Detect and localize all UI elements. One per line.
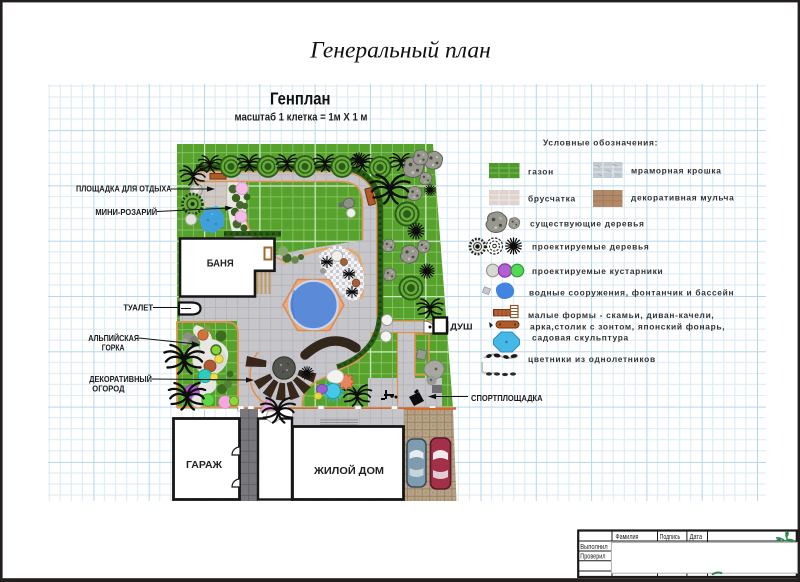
svg-text:БАНЯ: БАНЯ xyxy=(207,258,234,269)
svg-text:Условные обозначения:: Условные обозначения: xyxy=(543,138,658,148)
svg-text:проектируемые кустарники: проектируемые кустарники xyxy=(532,266,663,276)
svg-text:существующие деревья: существующие деревья xyxy=(530,219,645,229)
svg-text:АЛЬПИЙСКАЯ: АЛЬПИЙСКАЯ xyxy=(88,334,139,343)
svg-text:брусчатка: брусчатка xyxy=(528,194,576,204)
svg-text:ГОРКА: ГОРКА xyxy=(102,344,125,353)
svg-text:Фамилия: Фамилия xyxy=(616,534,639,541)
svg-text:малые формы - скамьи, диван-ка: малые формы - скамьи, диван-качели, xyxy=(528,310,714,320)
svg-text:ТУАЛЕТ: ТУАЛЕТ xyxy=(123,304,153,313)
svg-text:арка,столик с зонтом, японский: арка,столик с зонтом, японский фонарь, xyxy=(530,322,725,332)
svg-text:Выполнил: Выполнил xyxy=(580,544,607,551)
svg-text:садовая скульптура: садовая скульптура xyxy=(532,333,629,343)
svg-text:ПЛОЩАДКА ДЛЯ ОТДЫХА: ПЛОЩАДКА ДЛЯ ОТДЫХА xyxy=(76,185,172,194)
svg-text:цветники из однолетников: цветники из однолетников xyxy=(528,354,656,364)
svg-text:ЖИЛОЙ ДОМ: ЖИЛОЙ ДОМ xyxy=(313,464,384,477)
svg-text:мраморная крошка: мраморная крошка xyxy=(631,166,722,176)
svg-text:СПОРТПЛОЩАДКА: СПОРТПЛОЩАДКА xyxy=(471,394,543,403)
svg-text:МИНИ-РОЗАРИЙ: МИНИ-РОЗАРИЙ xyxy=(95,208,157,217)
svg-text:Дата: Дата xyxy=(690,534,703,541)
svg-text:ГАРАЖ: ГАРАЖ xyxy=(186,460,223,471)
svg-text:водные сооружения, фонтанчик и: водные сооружения, фонтанчик и бассейн xyxy=(529,288,734,298)
svg-text:газон: газон xyxy=(528,167,554,177)
svg-text:Проверил: Проверил xyxy=(580,554,605,561)
svg-text:Генеральный план: Генеральный план xyxy=(309,37,491,63)
svg-text:ДУШ: ДУШ xyxy=(450,323,472,332)
svg-text:ОГОРОД: ОГОРОД xyxy=(92,385,124,394)
svg-text:Подпись: Подпись xyxy=(660,534,681,541)
svg-text:ДЕКОРАТИВНЫЙ: ДЕКОРАТИВНЫЙ xyxy=(89,375,152,384)
svg-text:проектируемые деревья: проектируемые деревья xyxy=(532,242,649,252)
svg-text:масштаб 1 клетка = 1м X 1 м: масштаб 1 клетка = 1м X 1 м xyxy=(235,111,368,123)
svg-text:декоративная мульча: декоративная мульча xyxy=(631,193,734,203)
svg-text:Генплан: Генплан xyxy=(270,89,331,109)
